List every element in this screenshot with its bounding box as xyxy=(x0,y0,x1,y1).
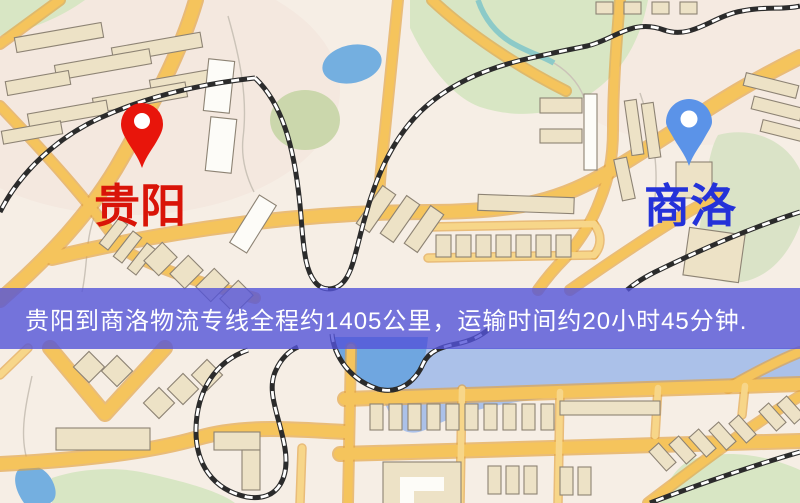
map-image: 贵阳 商洛 贵阳到商洛物流专线全程约1405公里，运输时间约20小时45分钟. xyxy=(0,0,800,503)
destination-pin-hole xyxy=(681,111,698,128)
route-banner: 贵阳到商洛物流专线全程约1405公里，运输时间约20小时45分钟. xyxy=(0,288,800,349)
route-banner-text: 贵阳到商洛物流专线全程约1405公里，运输时间约20小时45分钟. xyxy=(25,301,747,336)
origin-label: 贵阳 xyxy=(94,179,186,233)
destination-label: 商洛 xyxy=(644,180,737,232)
map-canvas: 贵阳 商洛 xyxy=(0,0,800,503)
origin-pin-hole xyxy=(134,113,150,129)
